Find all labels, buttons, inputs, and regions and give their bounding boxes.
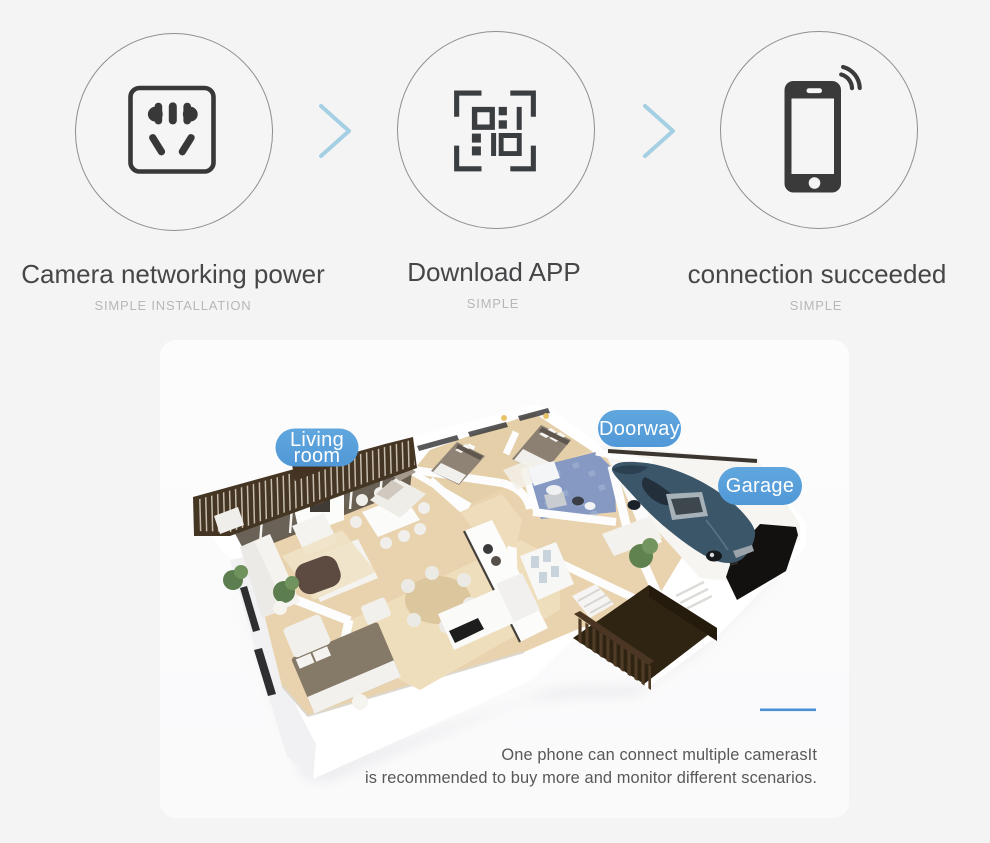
- svg-text:SIMPLE: SIMPLE: [790, 298, 842, 313]
- svg-text:connection succeeded: connection succeeded: [688, 259, 947, 289]
- svg-text:room: room: [294, 445, 341, 467]
- svg-text:Download APP: Download APP: [407, 257, 580, 287]
- svg-text:Garage: Garage: [726, 475, 795, 497]
- svg-text:One phone can connect multiple: One phone can connect multiple camerasIt: [501, 746, 817, 764]
- svg-text:SIMPLE INSTALLATION: SIMPLE INSTALLATION: [94, 298, 251, 313]
- svg-text:Doorway: Doorway: [599, 418, 680, 440]
- svg-text:SIMPLE: SIMPLE: [467, 296, 519, 311]
- svg-text:is recommended to buy more and: is recommended to buy more and monitor d…: [365, 769, 817, 787]
- svg-text:Camera networking power: Camera networking power: [21, 259, 325, 289]
